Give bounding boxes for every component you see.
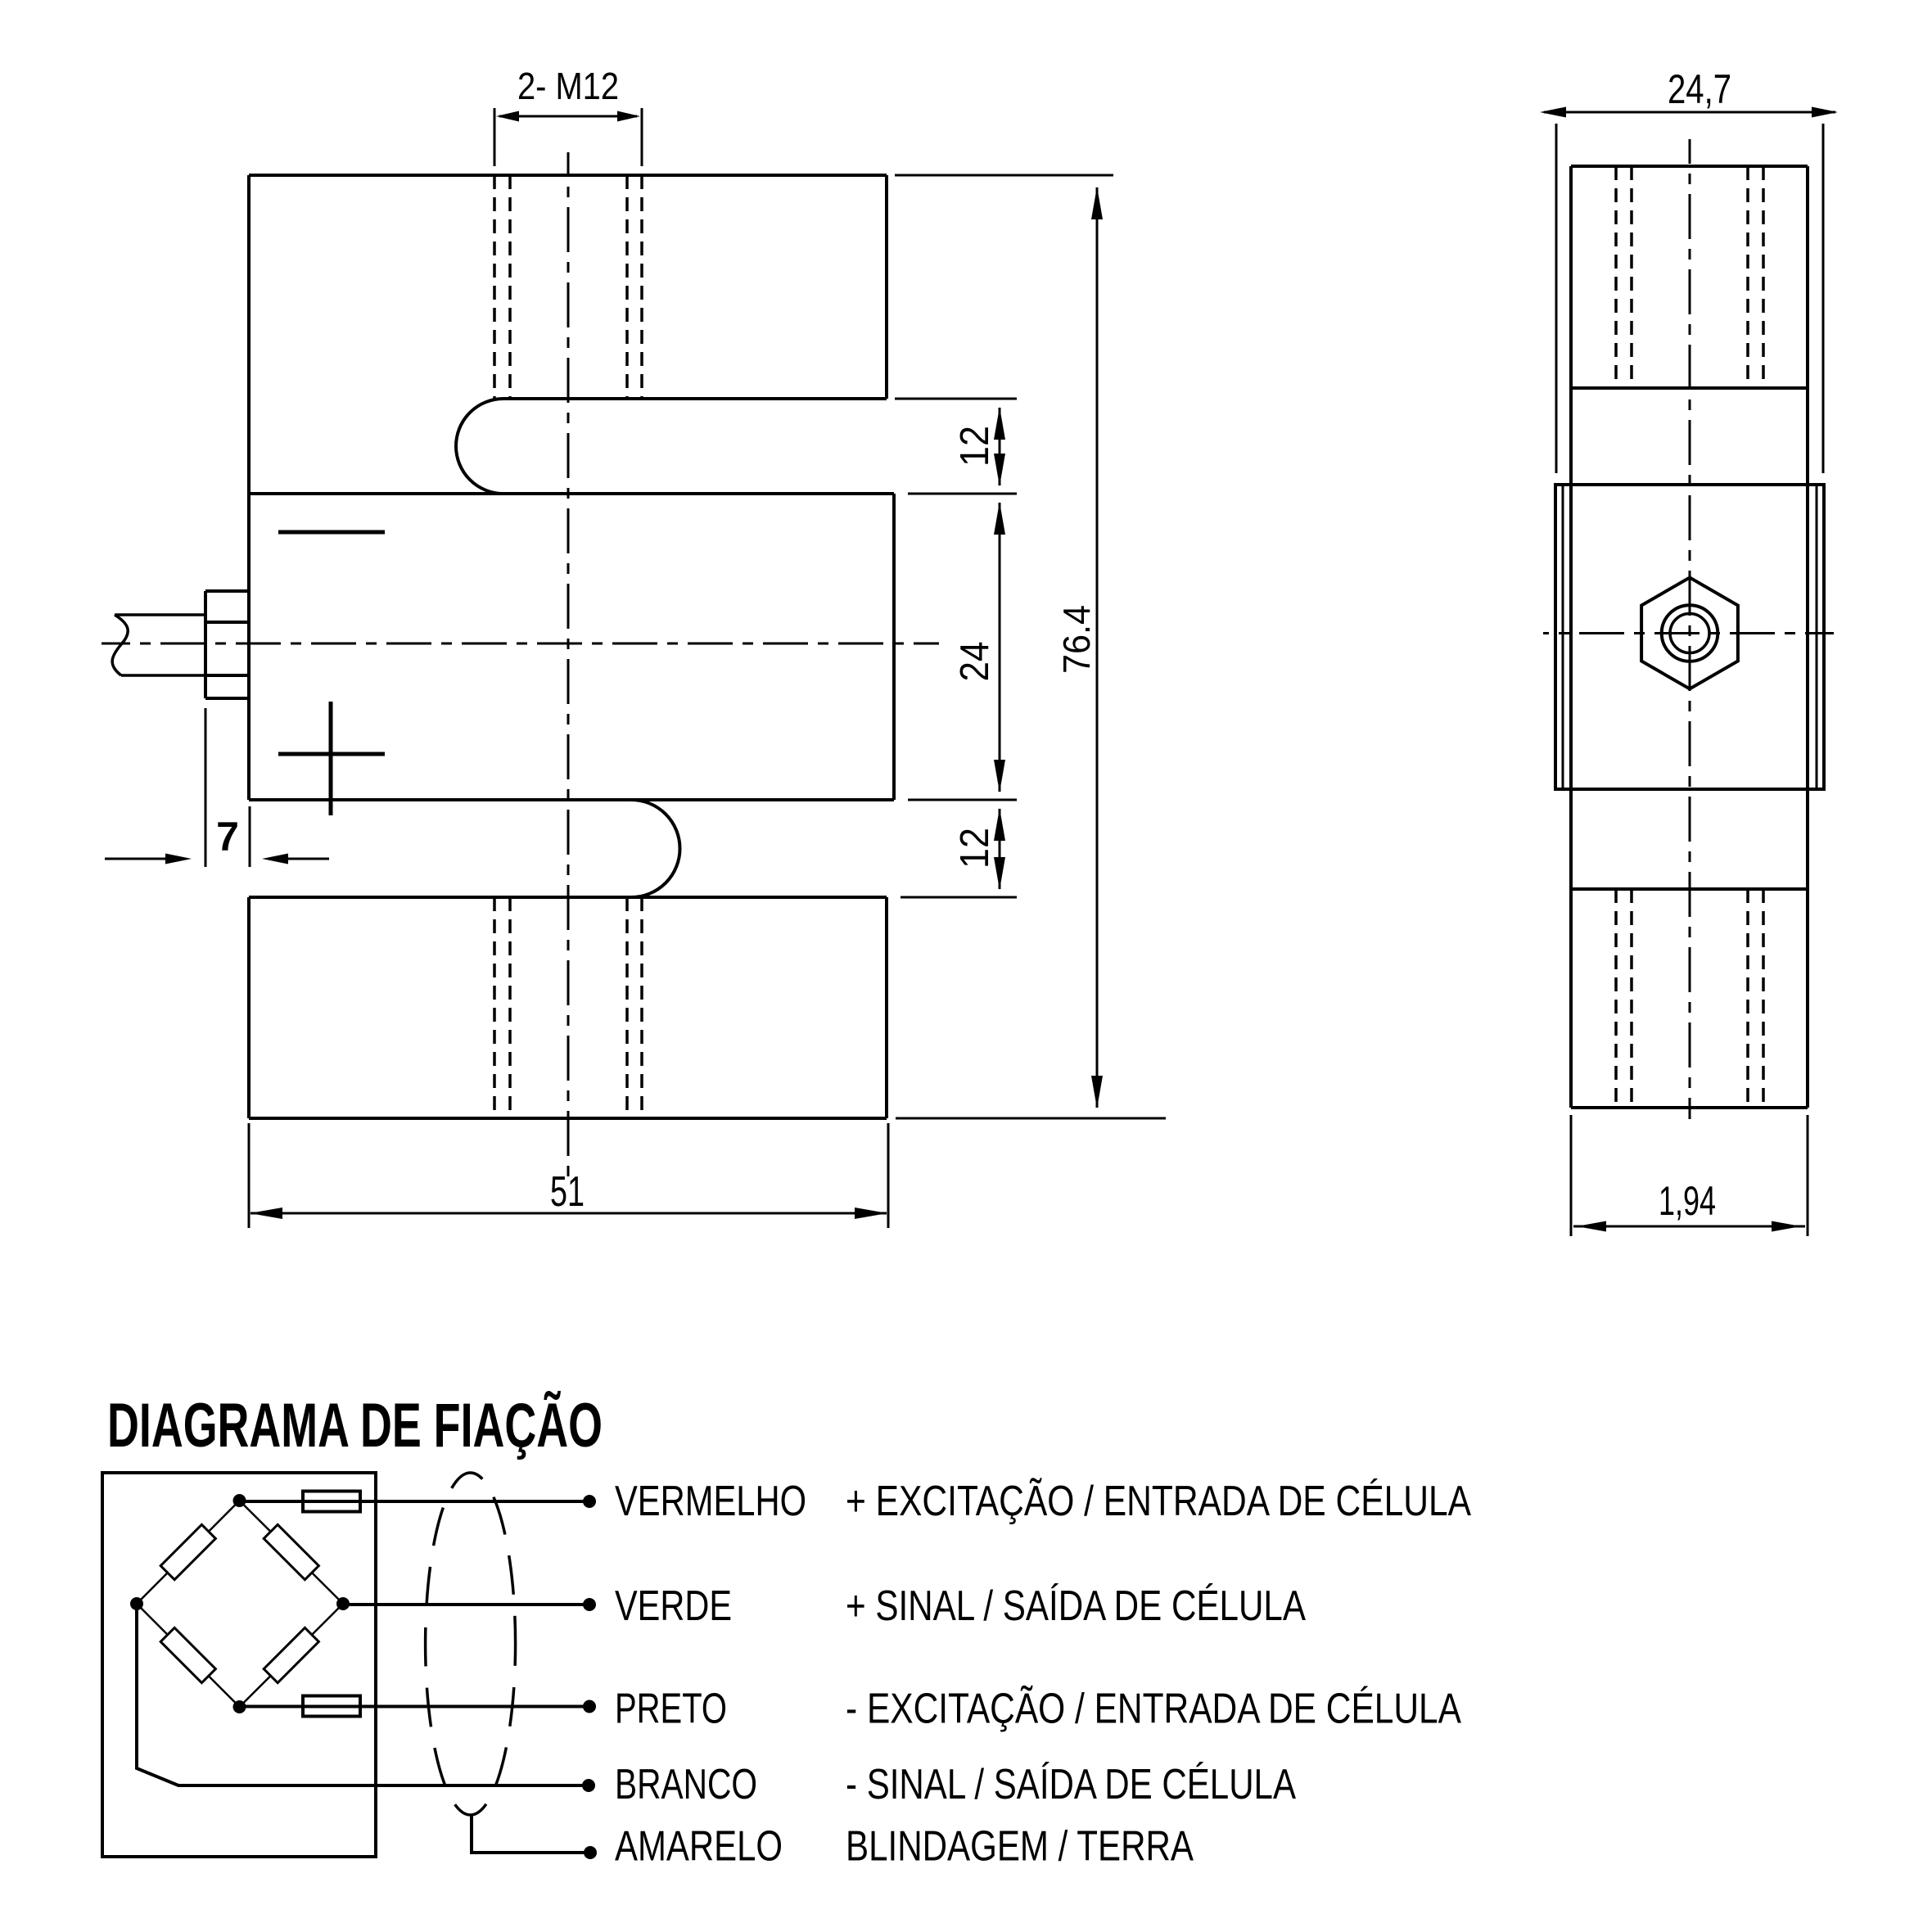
svg-text:BLINDAGEM / TERRA: BLINDAGEM / TERRA <box>846 1823 1194 1871</box>
svg-text:12: 12 <box>953 426 997 467</box>
svg-text:24,7: 24,7 <box>1668 66 1731 112</box>
svg-text:VERMELHO: VERMELHO <box>615 1478 806 1525</box>
svg-text:1,94: 1,94 <box>1659 1178 1716 1224</box>
svg-text:- SINAL / SAÍDA DE CÉLULA: - SINAL / SAÍDA DE CÉLULA <box>846 1761 1296 1808</box>
svg-text:24: 24 <box>953 642 997 682</box>
svg-text:BRANCO: BRANCO <box>615 1761 757 1808</box>
svg-text:VERDE: VERDE <box>615 1582 732 1630</box>
svg-text:AMARELO: AMARELO <box>615 1823 783 1871</box>
svg-text:51: 51 <box>550 1168 585 1216</box>
svg-text:+ SINAL / SAÍDA DE CÉLULA: + SINAL / SAÍDA DE CÉLULA <box>846 1582 1306 1630</box>
svg-text:DIAGRAMA DE FIAÇÃO: DIAGRAMA DE FIAÇÃO <box>107 1391 603 1460</box>
svg-text:7: 7 <box>216 814 239 860</box>
svg-text:+ EXCITAÇÃO / ENTRADA DE CÉLUL: + EXCITAÇÃO / ENTRADA DE CÉLULA <box>846 1478 1471 1525</box>
svg-text:2- M12: 2- M12 <box>517 65 619 107</box>
svg-text:12: 12 <box>953 828 997 869</box>
svg-text:- EXCITAÇÃO / ENTRADA DE CÉLUL: - EXCITAÇÃO / ENTRADA DE CÉLULA <box>846 1686 1461 1733</box>
svg-text:76.4: 76.4 <box>1055 605 1098 674</box>
svg-text:PRETO: PRETO <box>615 1686 727 1733</box>
